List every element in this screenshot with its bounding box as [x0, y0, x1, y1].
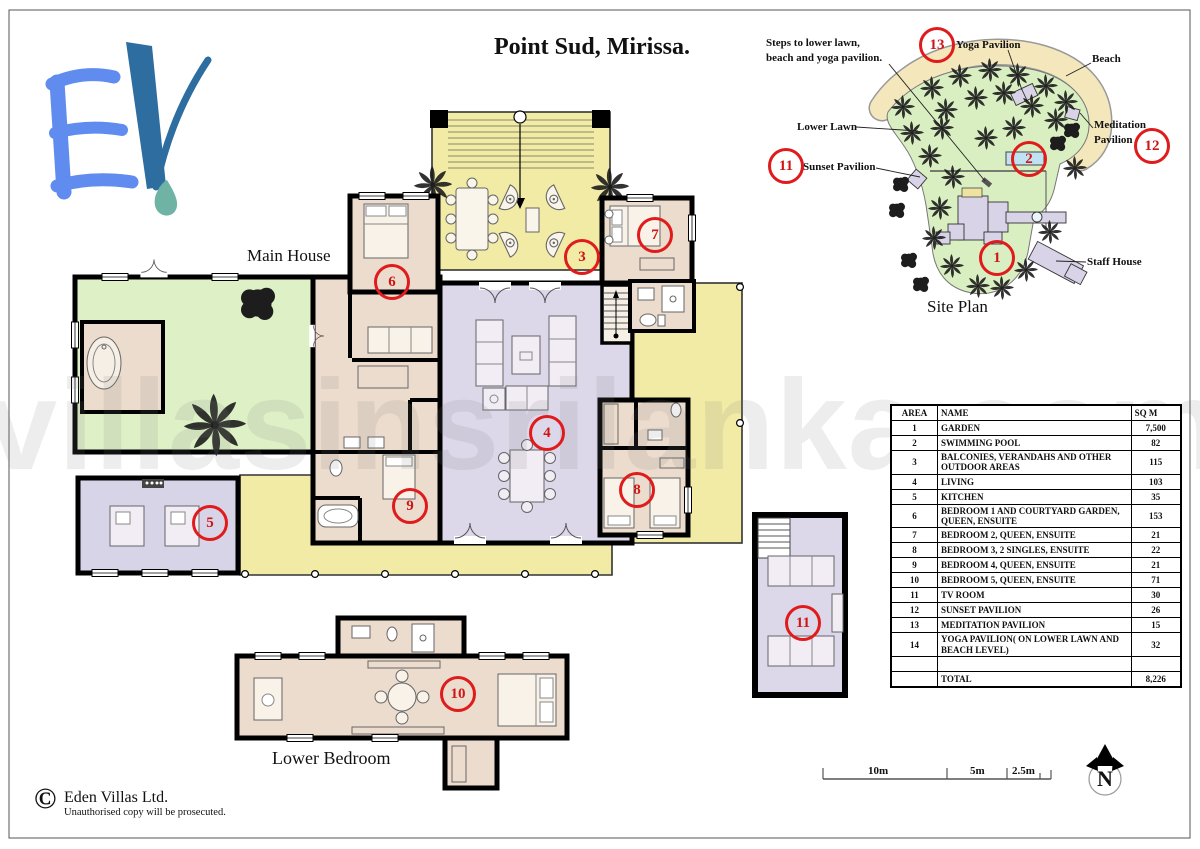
plan-marker-4: 4	[529, 415, 565, 451]
copyright-company: Eden Villas Ltd.	[64, 789, 168, 807]
table-row: 12SUNSET PAVILION26	[891, 603, 1181, 618]
table-row: 7BEDROOM 2, QUEEN, ENSUITE21	[891, 528, 1181, 543]
table-row: 6BEDROOM 1 AND COURTYARD GARDEN, QUEEN, …	[891, 504, 1181, 528]
plan-marker-8: 8	[619, 472, 655, 508]
meditation-pavilion-label-line2: Pavilion	[1094, 133, 1133, 147]
site-plan-label: Site Plan	[927, 297, 988, 317]
lower-lawn-label: Lower Lawn	[797, 120, 857, 134]
ev-logo	[52, 42, 208, 216]
area-table: AREA NAME SQ M 1GARDEN7,5002SWIMMING POO…	[890, 404, 1182, 688]
copyright-notice: Unauthorised copy will be prosecuted.	[64, 807, 226, 818]
table-row: 13MEDITATION PAVILION15	[891, 618, 1181, 633]
total-label: TOTAL	[938, 672, 1132, 688]
plan-marker-11: 11	[785, 605, 821, 641]
table-row: 9BEDROOM 4, QUEEN, ENSUITE21	[891, 558, 1181, 573]
main-house-label: Main House	[247, 246, 331, 266]
table-row: 4LIVING103	[891, 474, 1181, 489]
table-row: 3BALCONIES, VERANDAHS AND OTHER OUTDOOR …	[891, 451, 1181, 475]
plan-marker-9: 9	[392, 488, 428, 524]
page: { "page": { "title": "Point Sud, Mirissa…	[0, 0, 1200, 849]
scale-label-2-5m: 2.5m	[1012, 765, 1035, 777]
plan-marker-2: 2	[1011, 141, 1047, 177]
steps-annotation-line2: beach and yoga pavilion.	[766, 51, 882, 65]
staff-house-label: Staff House	[1087, 255, 1142, 269]
steps-annotation-line1: Steps to lower lawn,	[766, 36, 860, 50]
header-name: NAME	[938, 405, 1132, 421]
plan-marker-11: 11	[768, 148, 804, 184]
beach-label: Beach	[1092, 52, 1121, 66]
plan-marker-1: 1	[979, 240, 1015, 276]
plan-marker-10: 10	[440, 676, 476, 712]
sunset-pavilion-label: Sunset Pavilion	[803, 160, 875, 174]
table-total-row: TOTAL 8,226	[891, 672, 1181, 688]
total-value: 8,226	[1131, 672, 1181, 688]
plan-marker-13: 13	[919, 27, 955, 63]
header-area: AREA	[891, 405, 938, 421]
site-plan-graphic	[856, 50, 1099, 300]
table-row: 5KITCHEN35	[891, 489, 1181, 504]
table-row: 1GARDEN7,500	[891, 421, 1181, 436]
page-title: Point Sud, Mirissa.	[412, 34, 772, 61]
north-letter: N	[1097, 766, 1113, 792]
lower-bedroom-label: Lower Bedroom	[272, 748, 390, 769]
copyright-icon: ©	[34, 786, 56, 812]
yoga-pavilion-label: Yoga Pavilion	[956, 38, 1020, 52]
table-row: 8BEDROOM 3, 2 SINGLES, ENSUITE22	[891, 543, 1181, 558]
table-row: 2SWIMMING POOL82	[891, 436, 1181, 451]
plan-marker-6: 6	[374, 264, 410, 300]
plan-marker-3: 3	[564, 239, 600, 275]
table-row: 10BEDROOM 5, QUEEN, ENSUITE71	[891, 573, 1181, 588]
plan-marker-7: 7	[637, 217, 673, 253]
table-row: 14YOGA PAVILION( ON LOWER LAWN AND BEACH…	[891, 633, 1181, 657]
plan-marker-5: 5	[192, 505, 228, 541]
scale-label-10m: 10m	[868, 765, 888, 777]
table-row: 11TV ROOM30	[891, 588, 1181, 603]
scale-label-5m: 5m	[970, 765, 985, 777]
table-header-row: AREA NAME SQ M	[891, 405, 1181, 421]
table-row	[891, 657, 1181, 672]
header-sqm: SQ M	[1131, 405, 1181, 421]
meditation-pavilion-label-line1: Meditation	[1094, 118, 1146, 132]
plan-marker-12: 12	[1134, 128, 1170, 164]
